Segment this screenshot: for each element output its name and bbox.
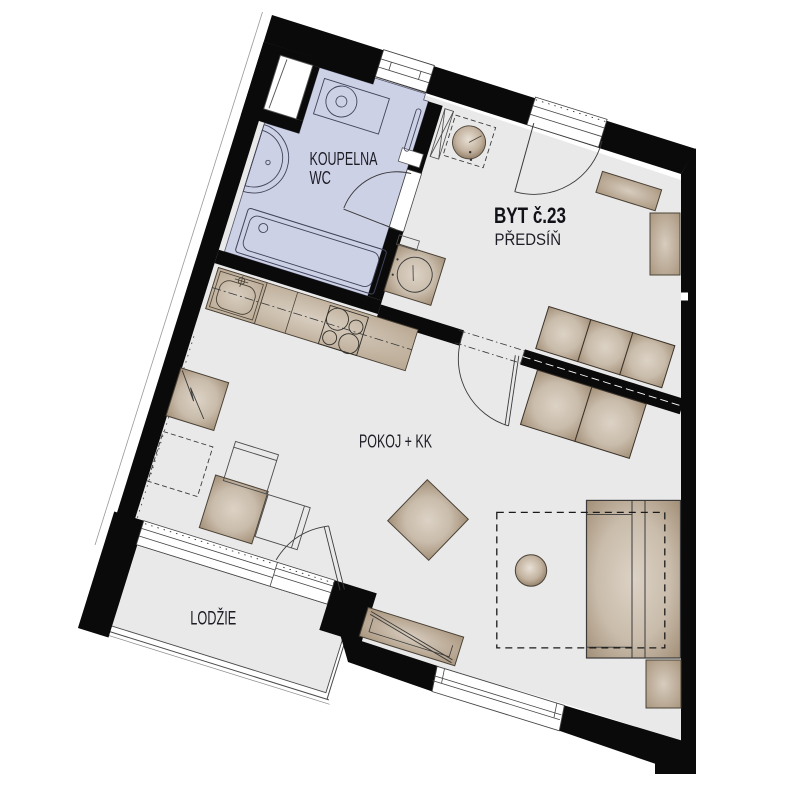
svg-text:BYT č.23: BYT č.23 [494,203,566,228]
svg-text:KOUPELNA: KOUPELNA [310,148,378,169]
svg-text:PŘEDSÍŇ: PŘEDSÍŇ [495,230,562,249]
svg-text:WC: WC [310,167,332,188]
svg-text:LODŽIE: LODŽIE [190,606,236,629]
svg-text:POKOJ + KK: POKOJ + KK [359,431,432,452]
